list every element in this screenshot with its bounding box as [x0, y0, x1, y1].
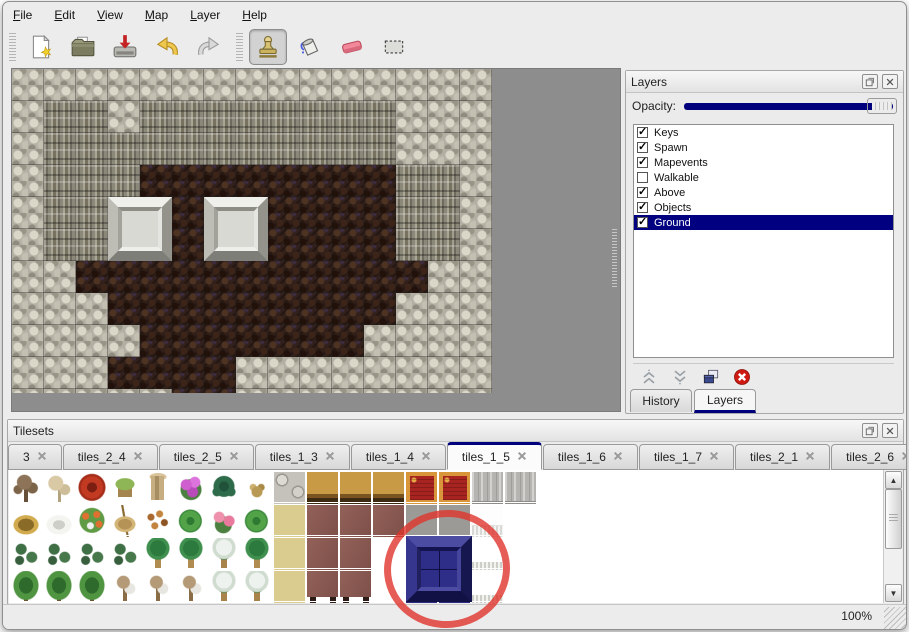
- map-tile[interactable]: [44, 229, 76, 261]
- map-tile[interactable]: [76, 133, 108, 165]
- map-tile[interactable]: [428, 229, 460, 261]
- map-tile[interactable]: [204, 389, 236, 393]
- map-tile[interactable]: [332, 389, 364, 393]
- map-tile[interactable]: [460, 69, 492, 101]
- new-file-icon: [28, 34, 54, 60]
- tileset-tile[interactable]: [175, 472, 207, 504]
- map-tile[interactable]: [396, 133, 428, 165]
- map-tile[interactable]: [44, 101, 76, 133]
- map-tile[interactable]: [332, 101, 364, 133]
- tileset-tile[interactable]: [274, 472, 306, 504]
- map-tile[interactable]: [140, 293, 172, 325]
- tileset-tab-tiles_1_3[interactable]: tiles_1_3: [255, 444, 350, 470]
- map-tile[interactable]: [300, 197, 332, 229]
- map-tile[interactable]: [428, 197, 460, 229]
- tileset-tile[interactable]: [43, 472, 75, 504]
- tileset-tile[interactable]: [43, 505, 75, 537]
- map-tile[interactable]: [460, 357, 492, 389]
- map-tile[interactable]: [300, 229, 332, 261]
- map-tile[interactable]: [236, 261, 268, 293]
- map-tile[interactable]: [460, 101, 492, 133]
- map-tile[interactable]: [108, 325, 140, 357]
- tileset-tile[interactable]: [373, 472, 405, 504]
- tileset-tile[interactable]: [142, 571, 174, 603]
- map-tile[interactable]: [236, 293, 268, 325]
- map-tile[interactable]: [44, 69, 76, 101]
- tileset-tile[interactable]: [274, 505, 306, 537]
- map-tile[interactable]: [76, 389, 108, 393]
- map-tile[interactable]: [428, 293, 460, 325]
- map-tile[interactable]: [300, 293, 332, 325]
- map-tile[interactable]: [332, 261, 364, 293]
- tileset-tab-tiles_2_1[interactable]: tiles_2_1: [735, 444, 830, 470]
- map-tile[interactable]: [268, 197, 300, 229]
- map-tile[interactable]: [300, 357, 332, 389]
- tileset-tile[interactable]: [76, 538, 108, 570]
- map-tile[interactable]: [12, 325, 44, 357]
- layer-row-walkable[interactable]: Walkable: [634, 170, 893, 185]
- scroll-down-button[interactable]: ▼: [885, 584, 902, 602]
- tileset-tab-3[interactable]: 3: [8, 444, 62, 470]
- tileset-tile[interactable]: [10, 538, 42, 570]
- map-tile[interactable]: [268, 69, 300, 101]
- map-tile[interactable]: [44, 325, 76, 357]
- map-tile[interactable]: [108, 101, 140, 133]
- layer-row-spawn[interactable]: ✓Spawn: [634, 140, 893, 155]
- tileset-tile[interactable]: [10, 472, 42, 504]
- map-tile[interactable]: [268, 165, 300, 197]
- map-tile[interactable]: [12, 357, 44, 389]
- map-tile[interactable]: [172, 69, 204, 101]
- map-tile[interactable]: [44, 165, 76, 197]
- close-panel-button[interactable]: [882, 74, 898, 89]
- map-tile[interactable]: [396, 69, 428, 101]
- map-tile[interactable]: [12, 389, 44, 393]
- map-tile[interactable]: [140, 165, 172, 197]
- resize-grip[interactable]: [884, 607, 906, 629]
- tileset-tile[interactable]: [472, 571, 504, 603]
- map-tile[interactable]: [332, 357, 364, 389]
- scroll-up-button[interactable]: ▲: [885, 471, 902, 489]
- zoom-level: 100%: [841, 609, 872, 623]
- map-tile[interactable]: [332, 197, 364, 229]
- tileset-tile[interactable]: [43, 571, 75, 603]
- tileset-tile[interactable]: [241, 571, 273, 603]
- map-canvas[interactable]: [12, 69, 492, 393]
- tileset-tile[interactable]: [142, 538, 174, 570]
- map-tile[interactable]: [76, 69, 108, 101]
- tileset-scrollbar[interactable]: ▲ ▼: [883, 470, 902, 603]
- tileset-tab-tiles_1_4[interactable]: tiles_1_4: [351, 444, 446, 470]
- layer-name: Keys: [654, 127, 678, 139]
- tab-close-button[interactable]: [613, 450, 623, 464]
- map-tile[interactable]: [364, 197, 396, 229]
- float-panel-button[interactable]: [862, 74, 878, 89]
- map-tile[interactable]: [300, 389, 332, 393]
- tileset-tile[interactable]: [175, 505, 207, 537]
- tileset-tile[interactable]: [340, 505, 372, 537]
- map-tile[interactable]: [204, 357, 236, 389]
- map-tile[interactable]: [204, 261, 236, 293]
- map-tile[interactable]: [460, 133, 492, 165]
- map-tile[interactable]: [364, 261, 396, 293]
- map-tile[interactable]: [76, 197, 108, 229]
- map-tile[interactable]: [396, 229, 428, 261]
- map-tile[interactable]: [12, 165, 44, 197]
- map-tile[interactable]: [44, 133, 76, 165]
- toolbar-group-handle[interactable]: [236, 33, 243, 61]
- tab-close-button[interactable]: [517, 450, 527, 464]
- map-tile[interactable]: [428, 133, 460, 165]
- map-tile[interactable]: [140, 389, 172, 393]
- map-tile[interactable]: [76, 165, 108, 197]
- fill-tool-icon: [297, 34, 323, 60]
- map-tile[interactable]: [268, 261, 300, 293]
- tileset-tile[interactable]: [175, 538, 207, 570]
- map-tile[interactable]: [300, 133, 332, 165]
- map-tile[interactable]: [236, 165, 268, 197]
- map-tile[interactable]: [396, 261, 428, 293]
- tileset-tile[interactable]: [307, 472, 339, 504]
- map-tile[interactable]: [76, 293, 108, 325]
- map-tile[interactable]: [428, 101, 460, 133]
- map-tile[interactable]: [108, 133, 140, 165]
- map-tile[interactable]: [268, 293, 300, 325]
- map-tile[interactable]: [332, 325, 364, 357]
- tileset-content[interactable]: ▲ ▼: [9, 470, 902, 603]
- layers-panel-header: Layers: [626, 71, 903, 93]
- map-tile[interactable]: [428, 261, 460, 293]
- map-tile[interactable]: [44, 357, 76, 389]
- stamp-tool-button[interactable]: [249, 29, 287, 65]
- stone-block[interactable]: [204, 197, 268, 261]
- tileset-tile[interactable]: [10, 505, 42, 537]
- map-tile[interactable]: [204, 165, 236, 197]
- map-tile[interactable]: [428, 357, 460, 389]
- tileset-tile[interactable]: [142, 505, 174, 537]
- map-tile[interactable]: [204, 293, 236, 325]
- layer-row-keys[interactable]: ✓Keys: [634, 125, 893, 140]
- map-tile[interactable]: [364, 101, 396, 133]
- map-tile[interactable]: [396, 101, 428, 133]
- map-tile[interactable]: [140, 69, 172, 101]
- map-tile[interactable]: [108, 293, 140, 325]
- map-tile[interactable]: [12, 261, 44, 293]
- tileset-tile[interactable]: [208, 472, 240, 504]
- map-tile[interactable]: [396, 357, 428, 389]
- close-icon: [613, 451, 623, 461]
- layer-visibility-checkbox[interactable]: ✓: [637, 187, 648, 198]
- new-file-button[interactable]: [22, 29, 60, 65]
- map-tile[interactable]: [460, 293, 492, 325]
- map-tile[interactable]: [460, 389, 492, 393]
- map-tile[interactable]: [76, 325, 108, 357]
- layer-row-above[interactable]: ✓Above: [634, 185, 893, 200]
- redo-button[interactable]: [190, 29, 228, 65]
- open-folder-button[interactable]: [64, 29, 102, 65]
- tileset-tile[interactable]: [76, 472, 108, 504]
- map-tile[interactable]: [428, 325, 460, 357]
- tileset-tile[interactable]: [406, 505, 438, 537]
- save-button[interactable]: [106, 29, 144, 65]
- fill-tool-button[interactable]: [291, 29, 329, 65]
- map-tile[interactable]: [108, 357, 140, 389]
- map-canvas-panel[interactable]: [11, 68, 621, 412]
- layer-row-ground[interactable]: ✓Ground: [634, 215, 893, 230]
- tileset-tab-tiles_2_4[interactable]: tiles_2_4: [63, 444, 158, 470]
- move-layer-up-button[interactable]: [639, 367, 659, 392]
- map-tile[interactable]: [332, 69, 364, 101]
- layer-row-mapevents[interactable]: ✓Mapevents: [634, 155, 893, 170]
- map-tile[interactable]: [460, 197, 492, 229]
- layer-visibility-checkbox[interactable]: ✓: [637, 217, 648, 228]
- tileset-tile[interactable]: [43, 538, 75, 570]
- tileset-tile[interactable]: [241, 472, 273, 504]
- tileset-tab-tiles_1_5[interactable]: tiles_1_5: [447, 442, 542, 470]
- map-tile[interactable]: [172, 261, 204, 293]
- tileset-tile[interactable]: [307, 571, 339, 603]
- select-tool-button[interactable]: [375, 29, 413, 65]
- map-tile[interactable]: [396, 389, 428, 393]
- map-tile[interactable]: [108, 69, 140, 101]
- map-tile[interactable]: [460, 165, 492, 197]
- map-tile[interactable]: [460, 325, 492, 357]
- tileset-tile[interactable]: [241, 505, 273, 537]
- tileset-tile[interactable]: [439, 472, 471, 504]
- map-tile[interactable]: [172, 293, 204, 325]
- map-tile[interactable]: [108, 165, 140, 197]
- map-tile[interactable]: [140, 133, 172, 165]
- tileset-tile[interactable]: [274, 538, 306, 570]
- tileset-tile[interactable]: [373, 505, 405, 537]
- tileset-tile[interactable]: [208, 538, 240, 570]
- tilesets-panel-header: Tilesets: [8, 420, 903, 442]
- map-tile[interactable]: [396, 165, 428, 197]
- map-tile[interactable]: [204, 325, 236, 357]
- map-tile[interactable]: [268, 229, 300, 261]
- map-tile[interactable]: [364, 357, 396, 389]
- tileset-tile[interactable]: [505, 472, 537, 504]
- close-icon: [805, 451, 815, 461]
- tileset-tile[interactable]: [109, 538, 141, 570]
- tab-close-button[interactable]: [901, 450, 907, 464]
- map-tile[interactable]: [12, 229, 44, 261]
- menu-item-layer[interactable]: Layer: [190, 8, 220, 22]
- layer-visibility-checkbox[interactable]: [637, 172, 648, 183]
- map-tile[interactable]: [460, 261, 492, 293]
- tileset-tile[interactable]: [109, 571, 141, 603]
- map-tile[interactable]: [76, 101, 108, 133]
- tileset-tab-tiles_1_6[interactable]: tiles_1_6: [543, 444, 638, 470]
- map-tile[interactable]: [300, 69, 332, 101]
- map-tile[interactable]: [268, 389, 300, 393]
- tab-history[interactable]: History: [630, 389, 692, 412]
- tileset-tile[interactable]: [439, 505, 471, 537]
- tileset-tile[interactable]: [406, 472, 438, 504]
- tileset-tile[interactable]: [142, 472, 174, 504]
- map-tile[interactable]: [172, 165, 204, 197]
- close-panel-button[interactable]: [882, 423, 898, 438]
- tab-close-button[interactable]: [133, 450, 143, 464]
- float-panel-button[interactable]: [862, 423, 878, 438]
- map-tile[interactable]: [44, 389, 76, 393]
- tileset-tab-tiles_2_5[interactable]: tiles_2_5: [159, 444, 254, 470]
- map-tile[interactable]: [300, 101, 332, 133]
- map-tile[interactable]: [12, 293, 44, 325]
- map-tile[interactable]: [236, 69, 268, 101]
- map-tile[interactable]: [12, 197, 44, 229]
- map-tile[interactable]: [12, 133, 44, 165]
- map-tile[interactable]: [332, 229, 364, 261]
- map-tile[interactable]: [364, 133, 396, 165]
- map-tile[interactable]: [140, 325, 172, 357]
- map-tile[interactable]: [172, 325, 204, 357]
- map-tile[interactable]: [396, 325, 428, 357]
- delete-layer-button[interactable]: [732, 367, 752, 392]
- opacity-slider-handle[interactable]: [867, 98, 897, 114]
- map-tile[interactable]: [332, 133, 364, 165]
- map-tile[interactable]: [460, 229, 492, 261]
- map-tile[interactable]: [172, 101, 204, 133]
- map-tile[interactable]: [204, 101, 236, 133]
- undo-button[interactable]: [148, 29, 186, 65]
- selected-blue-tile[interactable]: [406, 536, 472, 602]
- map-tile[interactable]: [300, 261, 332, 293]
- map-tile[interactable]: [76, 357, 108, 389]
- map-tile[interactable]: [108, 389, 140, 393]
- map-tile[interactable]: [12, 69, 44, 101]
- tileset-tile[interactable]: [340, 538, 372, 570]
- tab-close-button[interactable]: [709, 450, 719, 464]
- map-tile[interactable]: [172, 229, 204, 261]
- menu-item-help[interactable]: Help: [242, 8, 267, 22]
- menu-item-map[interactable]: Map: [145, 8, 168, 22]
- opacity-slider-track[interactable]: [684, 103, 893, 110]
- close-icon: [885, 77, 895, 87]
- tileset-tile[interactable]: [109, 505, 141, 537]
- eraser-tool-button[interactable]: [333, 29, 371, 65]
- map-tile[interactable]: [44, 197, 76, 229]
- map-tile[interactable]: [396, 197, 428, 229]
- map-tile[interactable]: [364, 293, 396, 325]
- map-tile[interactable]: [300, 325, 332, 357]
- map-tile[interactable]: [140, 101, 172, 133]
- tileset-tile[interactable]: [307, 538, 339, 570]
- tileset-tile[interactable]: [241, 538, 273, 570]
- map-tile[interactable]: [44, 261, 76, 293]
- map-tile[interactable]: [268, 325, 300, 357]
- tileset-tile[interactable]: [208, 505, 240, 537]
- menu-item-file[interactable]: File: [13, 8, 32, 22]
- map-tile[interactable]: [204, 133, 236, 165]
- close-icon: [229, 451, 239, 461]
- map-tile[interactable]: [364, 389, 396, 393]
- map-tile[interactable]: [428, 389, 460, 393]
- map-tile[interactable]: [172, 389, 204, 393]
- menu-item-edit[interactable]: Edit: [54, 8, 75, 22]
- duplicate-layer-button[interactable]: [701, 367, 721, 392]
- map-tile[interactable]: [396, 293, 428, 325]
- panel-splitter-handle[interactable]: [612, 229, 617, 289]
- map-tile[interactable]: [204, 69, 236, 101]
- tileset-tile[interactable]: [340, 571, 372, 603]
- map-tile[interactable]: [172, 133, 204, 165]
- tab-close-button[interactable]: [229, 450, 239, 464]
- tab-close-button[interactable]: [421, 450, 431, 464]
- map-tile[interactable]: [332, 165, 364, 197]
- map-tile[interactable]: [172, 357, 204, 389]
- map-tile[interactable]: [428, 165, 460, 197]
- tileset-tile[interactable]: [472, 505, 504, 537]
- map-tile[interactable]: [364, 325, 396, 357]
- layer-row-objects[interactable]: ✓Objects: [634, 200, 893, 215]
- tileset-tile[interactable]: [472, 472, 504, 504]
- map-tile[interactable]: [140, 261, 172, 293]
- map-tile[interactable]: [364, 165, 396, 197]
- opacity-slider[interactable]: [684, 98, 897, 114]
- tab-close-button[interactable]: [805, 450, 815, 464]
- map-tile[interactable]: [140, 357, 172, 389]
- tileset-tile[interactable]: [76, 505, 108, 537]
- map-tile[interactable]: [172, 197, 204, 229]
- map-tile[interactable]: [236, 101, 268, 133]
- layer-visibility-checkbox[interactable]: ✓: [637, 142, 648, 153]
- map-tile[interactable]: [44, 293, 76, 325]
- layer-visibility-checkbox[interactable]: ✓: [637, 157, 648, 168]
- tileset-tile[interactable]: [10, 571, 42, 603]
- map-tile[interactable]: [236, 325, 268, 357]
- layer-visibility-checkbox[interactable]: ✓: [637, 127, 648, 138]
- tab-close-button[interactable]: [37, 450, 47, 464]
- move-layer-down-button[interactable]: [670, 367, 690, 392]
- tab-layers[interactable]: Layers: [694, 389, 756, 413]
- tileset-tile[interactable]: [472, 538, 504, 570]
- tileset-tile[interactable]: [340, 472, 372, 504]
- tileset-tile[interactable]: [109, 472, 141, 504]
- map-tile[interactable]: [236, 133, 268, 165]
- tileset-tile[interactable]: [307, 505, 339, 537]
- map-tile[interactable]: [76, 261, 108, 293]
- toolbar-group-handle[interactable]: [9, 33, 16, 61]
- map-tile[interactable]: [268, 101, 300, 133]
- map-tile[interactable]: [428, 69, 460, 101]
- stone-block[interactable]: [108, 197, 172, 261]
- map-tile[interactable]: [236, 389, 268, 393]
- menu-item-view[interactable]: View: [97, 8, 123, 22]
- map-tile[interactable]: [12, 101, 44, 133]
- map-tile[interactable]: [268, 133, 300, 165]
- map-tile[interactable]: [364, 69, 396, 101]
- tileset-tab-tiles_1_7[interactable]: tiles_1_7: [639, 444, 734, 470]
- map-tile[interactable]: [76, 229, 108, 261]
- map-tile[interactable]: [268, 357, 300, 389]
- map-tile[interactable]: [300, 165, 332, 197]
- tileset-tile[interactable]: [76, 571, 108, 603]
- close-icon: [37, 451, 47, 461]
- tileset-tile[interactable]: [274, 571, 306, 603]
- tileset-tile-grid[interactable]: [9, 470, 569, 603]
- scrollbar-thumb[interactable]: [885, 489, 902, 549]
- tileset-tile[interactable]: [208, 571, 240, 603]
- map-tile[interactable]: [332, 293, 364, 325]
- map-tile[interactable]: [364, 229, 396, 261]
- map-tile[interactable]: [108, 261, 140, 293]
- tileset-tab-tiles_2_6[interactable]: tiles_2_6: [831, 444, 907, 470]
- tileset-tile[interactable]: [175, 571, 207, 603]
- tab-close-button[interactable]: [325, 450, 335, 464]
- layer-visibility-checkbox[interactable]: ✓: [637, 202, 648, 213]
- map-tile[interactable]: [236, 357, 268, 389]
